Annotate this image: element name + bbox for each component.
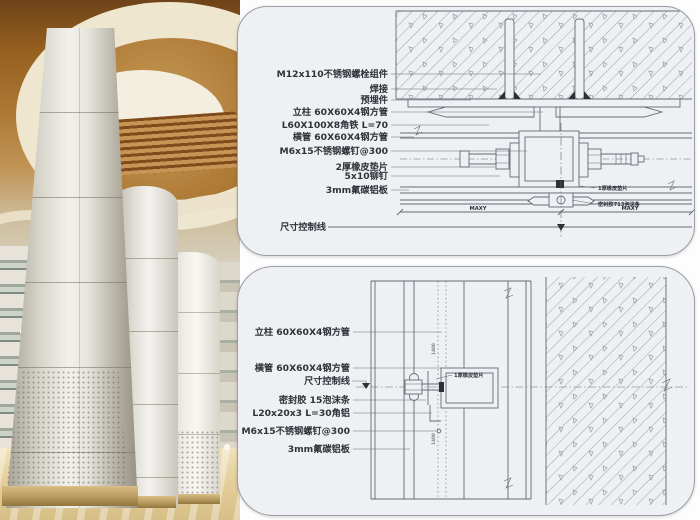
column-main-base — [2, 486, 138, 506]
label-cross-tube: 横管 60X60X4钢方管 — [293, 131, 388, 143]
size-control-line — [328, 224, 692, 231]
label-mullion: 立柱 60X60X4钢方管 — [255, 326, 350, 338]
concrete-slab — [396, 11, 692, 99]
label-screw: M6x15不锈钢螺钉@300 — [279, 145, 388, 157]
bolt-assembly-left — [460, 143, 519, 177]
detail-panel-bottom: 1400 1400 立柱 60X60X4钢方管 横管 60X60X4钢方管 尺寸… — [237, 266, 695, 516]
connection-assembly — [405, 371, 444, 433]
label-bolt-assembly: M12x110不锈钢螺栓组件 — [277, 68, 388, 80]
lobby-photo — [0, 0, 240, 520]
label-mullion: 立柱 60X60X4钢方管 — [293, 106, 388, 118]
label-alu-panel: 3mm氟碳铝板 — [326, 184, 389, 196]
label-rivet: 5x10铆钉 — [345, 170, 389, 182]
dim-text-left: MAXY — [470, 206, 487, 212]
bolt-assembly-right — [579, 143, 644, 177]
vertical-tube — [540, 107, 560, 131]
concrete-wall — [546, 277, 672, 505]
label-angle-iron: L60X100X8角铁 L=70 — [282, 119, 388, 131]
label-control-line: 尺寸控制线 — [304, 375, 351, 387]
connection-box — [519, 131, 579, 187]
detail-panel-top: MAXY MAXY M12x110不锈钢螺栓组件 焊接 预埋件 立柱 60X60… — [237, 6, 695, 256]
top-detail-drawing: MAXY MAXY M12x110不锈钢螺栓组件 焊接 预埋件 立柱 60X60… — [238, 7, 694, 255]
dimension-line: MAXY MAXY — [397, 206, 694, 215]
dim-vert-upper: 1400 — [431, 343, 436, 355]
label-cross-tube: 横管 60X60X4钢方管 — [255, 362, 350, 374]
dim-vert-lower: 1400 — [431, 433, 436, 445]
callout-sealant: 密封胶713泡沫条 — [598, 200, 641, 208]
label-control-line: 尺寸控制线 — [280, 221, 327, 233]
callout-thin-gasket: 1厚橡皮垫片 — [454, 371, 484, 379]
bottom-detail-drawing: 1400 1400 立柱 60X60X4钢方管 横管 60X60X4钢方管 尺寸… — [238, 267, 694, 515]
callout-thin-gasket: 1厚橡皮垫片 — [598, 184, 628, 192]
label-embed: 预埋件 — [360, 94, 388, 106]
label-weld: 焊接 — [370, 83, 389, 95]
vertical-dimensions: 1400 1400 — [431, 343, 436, 445]
page: { "palette": { "panel_bg": "#eef0f3", "p… — [0, 0, 700, 520]
column-main-perforation — [6, 370, 128, 488]
label-screw: M6x15不锈钢螺钉@300 — [241, 425, 350, 437]
control-line-arrow — [352, 381, 370, 389]
label-sealant: 密封胶 15泡沫条 — [278, 394, 351, 406]
label-column: 立柱 60X60X4钢方管 横管 60X60X4钢方管 尺寸控制线 密封胶 15… — [241, 326, 350, 455]
label-angle-alu: L20x20x3 L=30角铝 — [252, 407, 350, 419]
label-alu-panel: 3mm氟碳铝板 — [288, 443, 351, 455]
label-column: M12x110不锈钢螺栓组件 焊接 预埋件 立柱 60X60X4钢方管 L60X… — [277, 68, 389, 233]
